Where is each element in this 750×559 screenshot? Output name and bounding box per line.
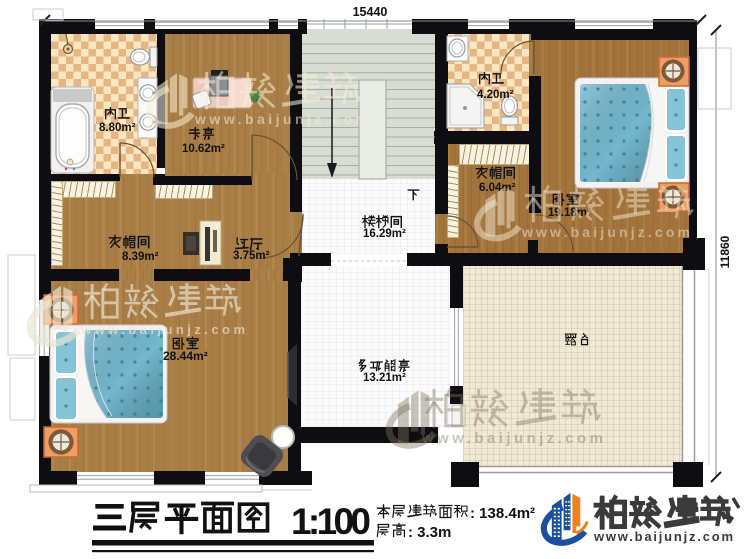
svg-text:8.80m²: 8.80m² xyxy=(99,122,136,134)
svg-text:16.29m²: 16.29m² xyxy=(363,228,406,240)
svg-text:19.18m²: 19.18m² xyxy=(548,207,591,219)
svg-text:1:100: 1:100 xyxy=(291,501,371,542)
svg-text:: 3.3m: : 3.3m xyxy=(408,524,451,541)
svg-text:www.baijunjz.com: www.baijunjz.com xyxy=(593,529,733,544)
svg-text:www.baijunjz.com: www.baijunjz.com xyxy=(194,111,368,127)
svg-text:3.75m²: 3.75m² xyxy=(233,250,270,262)
svg-text:15440: 15440 xyxy=(353,5,388,19)
svg-text:4.20m²: 4.20m² xyxy=(477,89,514,101)
svg-text:8.39m²: 8.39m² xyxy=(122,251,159,263)
svg-text:28.44m²: 28.44m² xyxy=(163,349,208,363)
svg-text:10.62m²: 10.62m² xyxy=(182,143,225,155)
svg-text:www.baijunjz.com: www.baijunjz.com xyxy=(421,430,603,447)
svg-text:www.baijunjz.com: www.baijunjz.com xyxy=(521,224,690,240)
svg-text:13.21m²: 13.21m² xyxy=(363,372,406,384)
svg-text:: 138.4m²: : 138.4m² xyxy=(470,505,535,522)
svg-text:11860: 11860 xyxy=(718,235,732,268)
